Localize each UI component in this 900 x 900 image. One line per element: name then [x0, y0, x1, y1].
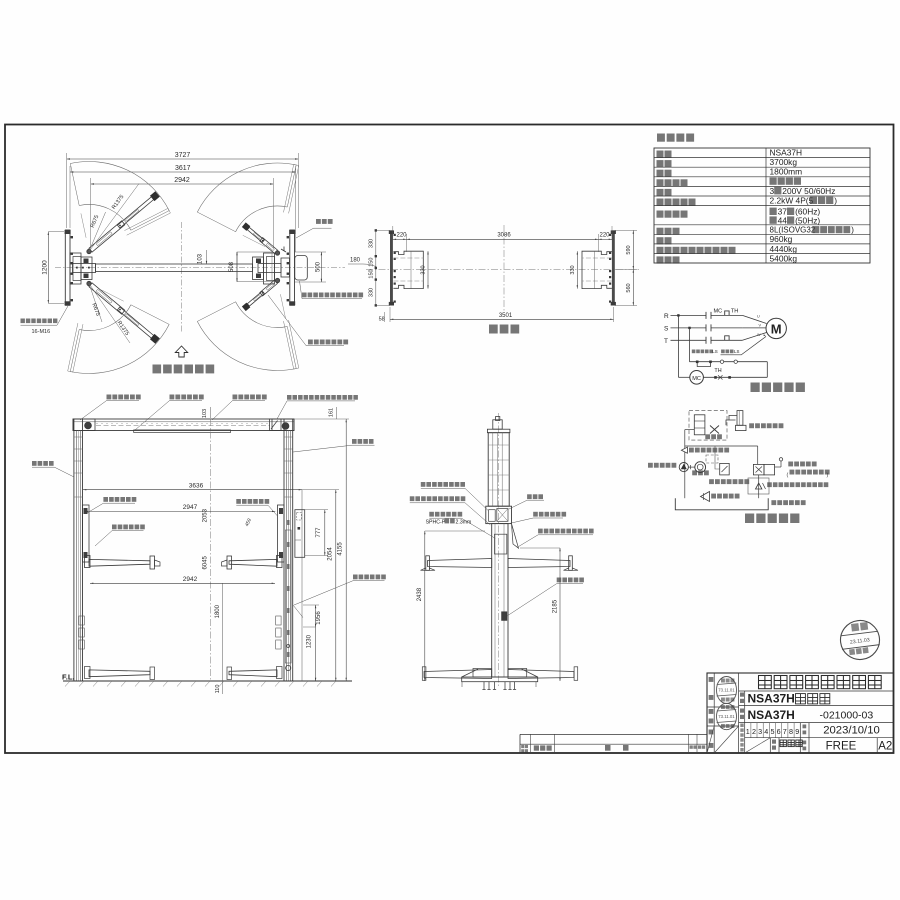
svg-text:2942: 2942	[183, 576, 198, 583]
svg-text:NSA37H: NSA37H	[770, 148, 803, 158]
svg-text:3: 3	[770, 186, 775, 196]
svg-text:508: 508	[229, 261, 235, 272]
svg-text:9: 9	[795, 727, 799, 736]
svg-text:7: 7	[783, 727, 787, 736]
svg-text:103: 103	[202, 409, 208, 418]
svg-text:5: 5	[771, 727, 775, 736]
svg-text:6045: 6045	[203, 555, 209, 569]
svg-text:560: 560	[626, 283, 632, 292]
svg-text:TH: TH	[714, 368, 721, 374]
svg-text:330: 330	[369, 288, 375, 297]
svg-text:6: 6	[777, 727, 781, 736]
svg-text:5400kg: 5400kg	[770, 253, 798, 263]
svg-text:S: S	[664, 326, 669, 333]
svg-text:180: 180	[350, 258, 361, 264]
svg-text:330: 330	[369, 239, 375, 248]
svg-text:73.11.01: 73.11.01	[718, 688, 735, 693]
svg-text:2: 2	[752, 727, 756, 736]
svg-text:FREE: FREE	[826, 741, 857, 753]
svg-text:): )	[851, 226, 854, 235]
svg-text:161: 161	[329, 408, 335, 417]
svg-text:U: U	[757, 315, 760, 319]
svg-text:(50Hz): (50Hz)	[795, 215, 820, 225]
svg-text:NSA37H: NSA37H	[748, 692, 795, 706]
svg-text:2023/10/10: 2023/10/10	[823, 725, 880, 737]
svg-text:1800: 1800	[215, 604, 221, 618]
svg-text:3086: 3086	[497, 233, 511, 239]
svg-text:330: 330	[421, 265, 427, 274]
svg-text:NSA37H: NSA37H	[748, 708, 795, 722]
svg-text:73.11.01: 73.11.01	[718, 714, 735, 719]
svg-text:R: R	[664, 313, 669, 320]
svg-text:3501: 3501	[499, 313, 513, 319]
svg-text:): )	[827, 473, 829, 479]
svg-text:W: W	[757, 333, 761, 337]
svg-text:A2: A2	[878, 741, 892, 753]
svg-text:16-M16: 16-M16	[32, 329, 51, 335]
svg-text:): )	[834, 196, 837, 206]
svg-text:220: 220	[396, 233, 407, 239]
svg-text:(: (	[787, 473, 789, 479]
svg-text:2.2kW 4P(5: 2.2kW 4P(5	[770, 196, 814, 206]
svg-text:1200: 1200	[42, 260, 49, 275]
svg-text:58: 58	[379, 317, 385, 323]
svg-text:1230: 1230	[307, 634, 313, 648]
svg-text:44: 44	[778, 215, 788, 225]
svg-text:1: 1	[746, 727, 750, 736]
svg-text:330: 330	[570, 265, 576, 274]
svg-text:2054: 2054	[328, 547, 334, 561]
svg-text:2053: 2053	[203, 508, 209, 522]
svg-text:2942: 2942	[174, 177, 190, 184]
svg-text:220: 220	[599, 233, 610, 239]
svg-text:1800mm: 1800mm	[770, 167, 803, 177]
svg-text:LS: LS	[712, 349, 717, 354]
svg-text:3617: 3617	[175, 165, 191, 172]
svg-text:4440kg: 4440kg	[770, 244, 798, 254]
svg-text:200V 50/60Hz: 200V 50/60Hz	[782, 186, 835, 196]
svg-text:110: 110	[215, 685, 221, 694]
svg-text:3700kg: 3700kg	[770, 157, 798, 167]
svg-text:8: 8	[789, 727, 793, 736]
svg-text:500: 500	[316, 261, 322, 272]
svg-text:F.L.: F.L.	[62, 673, 75, 682]
svg-text:MC: MC	[714, 309, 723, 315]
svg-text:SPHC-P: SPHC-P	[426, 519, 446, 525]
svg-text:590: 590	[626, 245, 632, 254]
svg-text:777: 777	[316, 527, 322, 538]
svg-text:150: 150	[369, 269, 375, 278]
svg-text:103: 103	[198, 253, 204, 264]
svg-text:1956: 1956	[316, 611, 322, 625]
svg-text:MC: MC	[692, 376, 701, 382]
svg-text:2.3mm: 2.3mm	[456, 519, 472, 525]
svg-text:LS: LS	[734, 349, 739, 354]
svg-text:T: T	[664, 338, 668, 345]
svg-text:2185: 2185	[553, 599, 559, 613]
svg-text:3636: 3636	[189, 483, 204, 490]
svg-text:M: M	[771, 321, 782, 336]
svg-text:2438: 2438	[417, 587, 423, 601]
svg-text:4: 4	[764, 727, 768, 736]
svg-text:-021000-03: -021000-03	[820, 710, 874, 722]
svg-text:4155: 4155	[338, 542, 344, 556]
svg-text:3727: 3727	[175, 152, 191, 159]
svg-text:960kg: 960kg	[770, 234, 793, 244]
svg-text:TH: TH	[731, 309, 738, 315]
svg-text:2947: 2947	[183, 504, 198, 511]
svg-text:3: 3	[758, 727, 762, 736]
